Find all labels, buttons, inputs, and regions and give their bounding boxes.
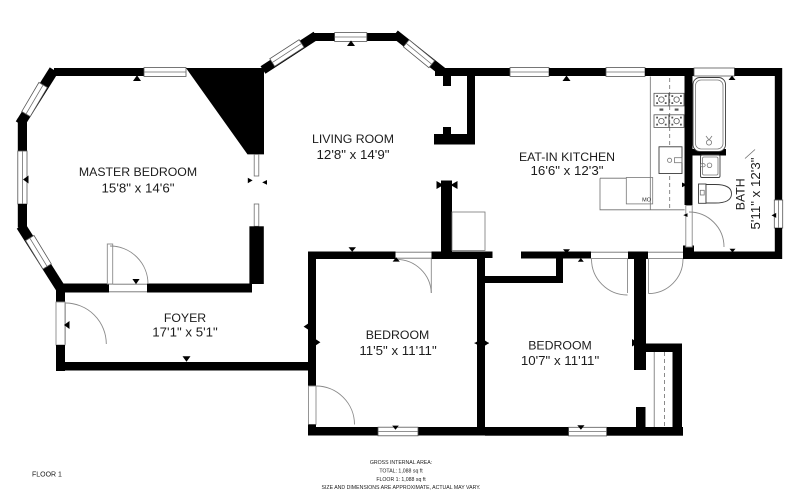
svg-text:16'6" x 12'3": 16'6" x 12'3" (531, 163, 604, 178)
svg-text:EAT-IN KITCHEN: EAT-IN KITCHEN (519, 150, 615, 164)
svg-text:17'1" x 5'1": 17'1" x 5'1" (152, 325, 218, 340)
svg-text:FOYER: FOYER (164, 311, 206, 325)
svg-text:FLOOR 1: 1,088 sq ft: FLOOR 1: 1,088 sq ft (376, 477, 426, 483)
svg-text:TOTAL: 1,088 sq ft: TOTAL: 1,088 sq ft (379, 468, 423, 474)
svg-text:BEDROOM: BEDROOM (528, 339, 592, 353)
svg-text:5'11" x 12'3": 5'11" x 12'3" (748, 157, 763, 229)
svg-text:LIVING ROOM: LIVING ROOM (312, 132, 394, 146)
svg-text:12'8" x 14'9": 12'8" x 14'9" (317, 147, 390, 162)
svg-text:BATH: BATH (734, 178, 748, 210)
svg-text:MASTER BEDROOM: MASTER BEDROOM (79, 165, 197, 179)
svg-text:FLOOR 1: FLOOR 1 (32, 472, 62, 479)
svg-text:10'7" x 11'11": 10'7" x 11'11" (521, 353, 600, 368)
svg-text:MO: MO (642, 198, 652, 204)
svg-text:BEDROOM: BEDROOM (366, 328, 430, 342)
svg-text:SIZE AND DIMENSIONS ARE APPROX: SIZE AND DIMENSIONS ARE APPROXIMATE, ACT… (322, 485, 481, 491)
svg-text:GROSS INTERNAL AREA:: GROSS INTERNAL AREA: (370, 460, 432, 466)
svg-text:11'5" x 11'11": 11'5" x 11'11" (359, 343, 437, 358)
svg-text:15'8" x 14'6": 15'8" x 14'6" (102, 181, 175, 196)
